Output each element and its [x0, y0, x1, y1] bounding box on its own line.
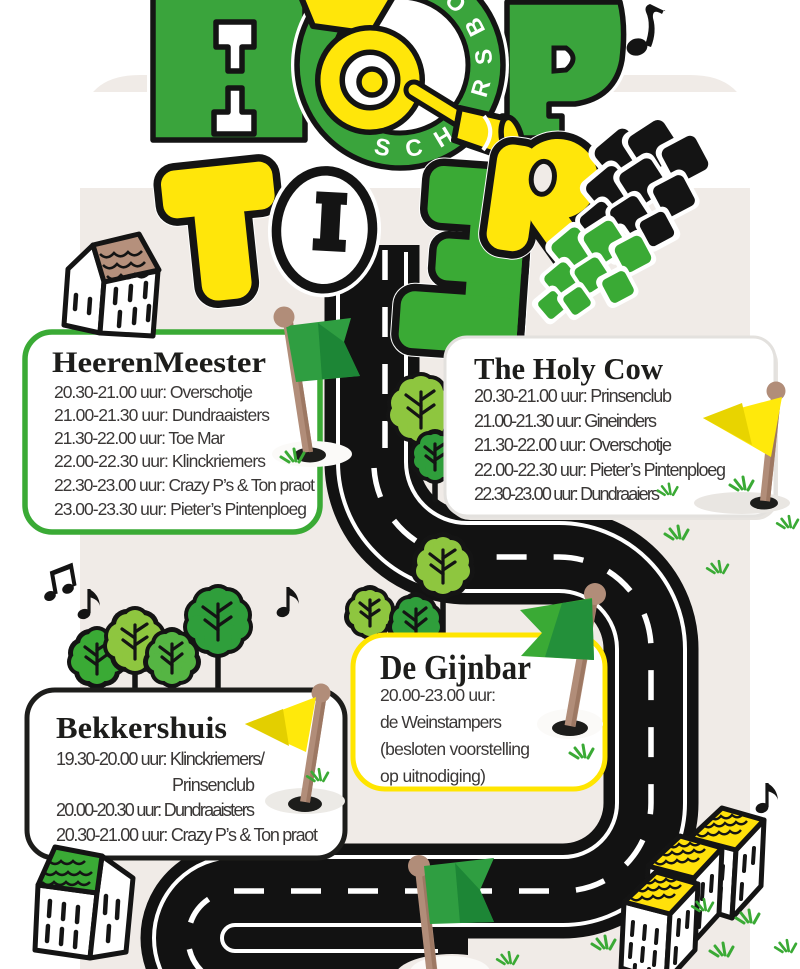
svg-text:21.30-22.00 uur: Toe Mar: 21.30-22.00 uur: Toe Mar — [54, 428, 225, 448]
svg-text:20.00-23.00 uur:: 20.00-23.00 uur: — [380, 685, 496, 705]
svg-text:20.30-21.00 uur: Prinsenclub: 20.30-21.00 uur: Prinsenclub — [474, 386, 672, 406]
svg-text:21.00-21.30 uur: Dundraaisters: 21.00-21.30 uur: Dundraaisters — [54, 405, 270, 425]
svg-text:21.00-21.30 uur: Gineinders: 21.00-21.30 uur: Gineinders — [474, 411, 657, 431]
svg-text:21.30-22.00 uur: Overschotje: 21.30-22.00 uur: Overschotje — [474, 435, 672, 455]
svg-text:Bekkershuis: Bekkershuis — [56, 710, 227, 745]
svg-text:Prinsenclub: Prinsenclub — [172, 775, 255, 795]
svg-text:22.30-23.00 uur: Crazy P’s & T: 22.30-23.00 uur: Crazy P’s & Ton praot — [54, 475, 315, 495]
svg-text:23.00-23.30 uur: Pieter’s Pint: 23.00-23.30 uur: Pieter’s Pintenploeg — [54, 499, 307, 519]
svg-text:HeerenMeester: HeerenMeester — [52, 346, 266, 379]
svg-text:22.00-22.30 uur: Klinckriemers: 22.00-22.30 uur: Klinckriemers — [54, 451, 266, 471]
svg-text:S: S — [470, 48, 497, 66]
svg-text:20.30-21.00 uur: Crazy P’s & T: 20.30-21.00 uur: Crazy P’s & Ton praot — [56, 825, 318, 845]
svg-text:op uitnodiging): op uitnodiging) — [380, 766, 486, 786]
svg-text:(besloten voorstelling: (besloten voorstelling — [380, 739, 530, 759]
svg-text:22.00-22.30 uur: Pieter’s Pint: 22.00-22.30 uur: Pieter’s Pintenploeg — [474, 460, 726, 480]
svg-text:20.00-20.30 uur: Dundraaisters: 20.00-20.30 uur: Dundraaisters — [56, 800, 255, 820]
svg-text:de Weinstampers: de Weinstampers — [380, 712, 502, 732]
svg-text:22.30-23.00 uur: Dundraaiers: 22.30-23.00 uur: Dundraaiers — [474, 484, 660, 504]
svg-text:The Holy Cow: The Holy Cow — [474, 351, 664, 386]
svg-text:De Gijnbar: De Gijnbar — [380, 648, 531, 687]
svg-text:19.30-20.00 uur: Klinckriemers: 19.30-20.00 uur: Klinckriemers/ — [56, 749, 265, 769]
svg-text:20.30-21.00 uur: Overschotje: 20.30-21.00 uur: Overschotje — [54, 382, 253, 402]
